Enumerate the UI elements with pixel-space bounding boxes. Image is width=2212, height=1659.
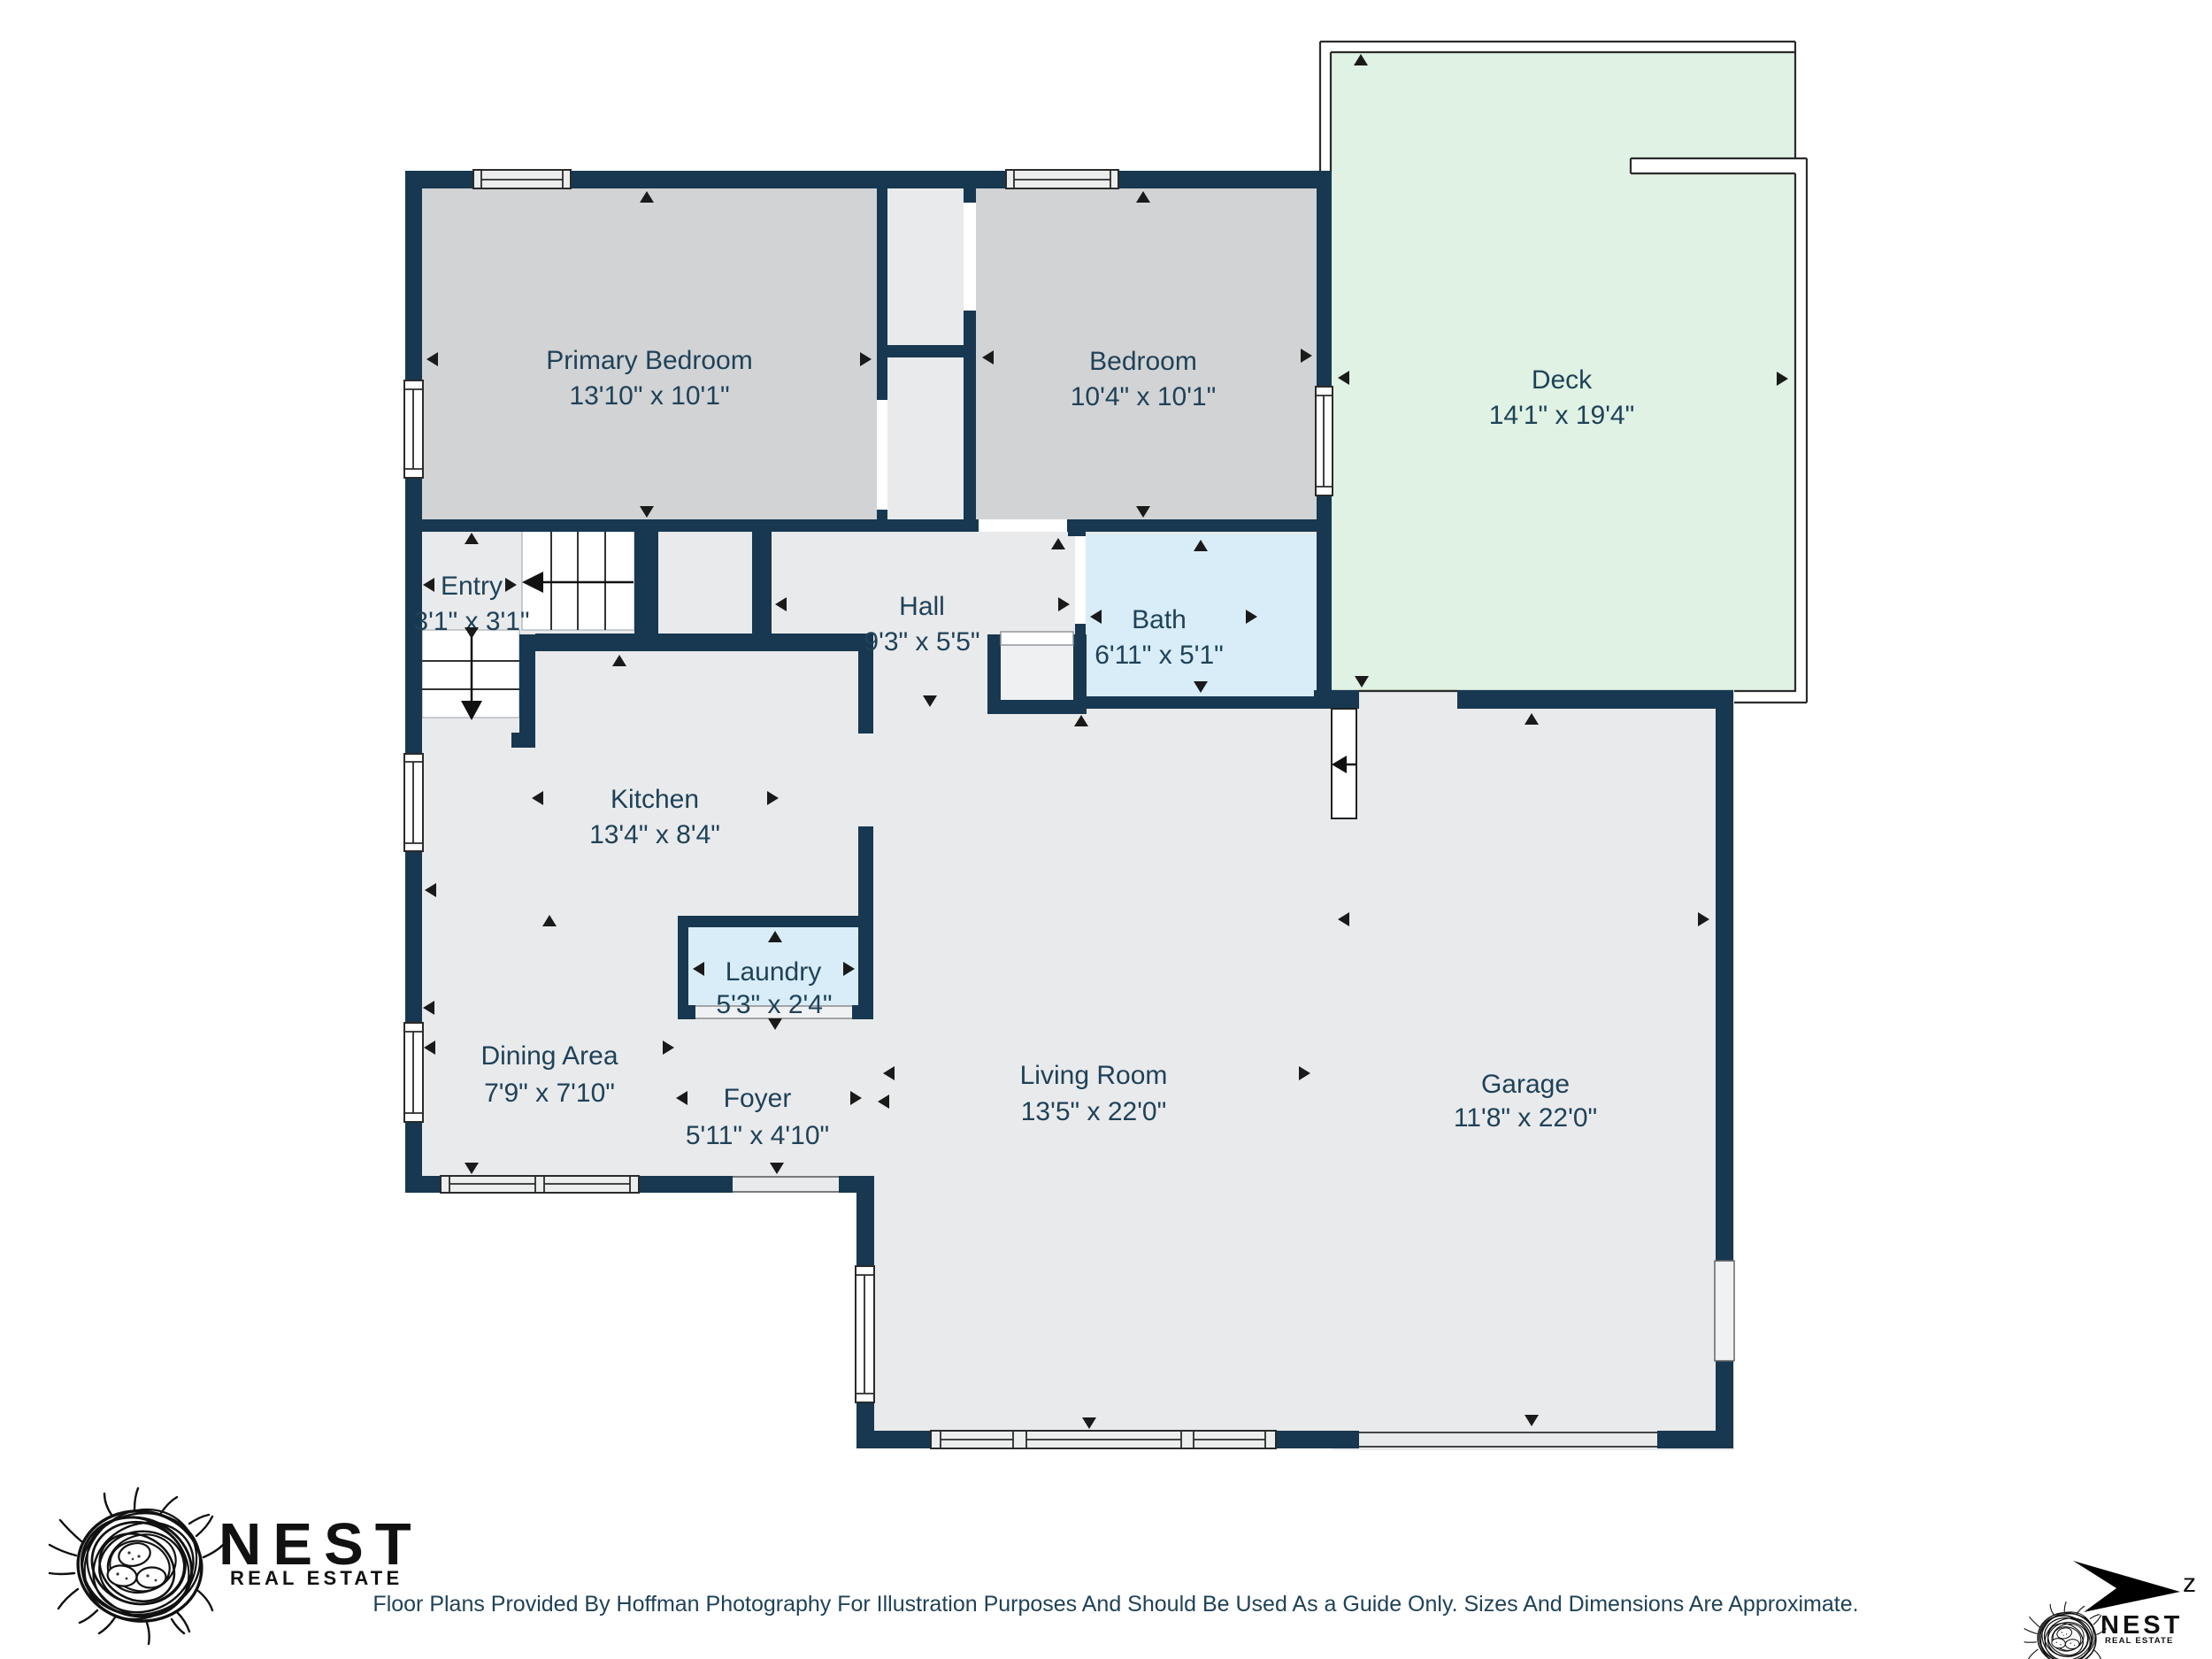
svg-text:14'1" x 19'4": 14'1" x 19'4" <box>1489 401 1635 430</box>
svg-text:Hall: Hall <box>899 592 945 621</box>
svg-text:REAL ESTATE: REAL ESTATE <box>230 1567 403 1589</box>
svg-text:9'3" x 5'5": 9'3" x 5'5" <box>864 627 979 657</box>
svg-text:Living Room: Living Room <box>1020 1061 1168 1090</box>
svg-text:13'10" x 10'1": 13'10" x 10'1" <box>569 381 729 411</box>
svg-text:6'11" x 5'1": 6'11" x 5'1" <box>1094 641 1224 670</box>
svg-text:10'4" x 10'1": 10'4" x 10'1" <box>1071 382 1217 411</box>
svg-text:Bath: Bath <box>1132 605 1187 634</box>
svg-text:Laundry: Laundry <box>726 957 821 987</box>
svg-text:7'9" x 7'10": 7'9" x 7'10" <box>484 1079 615 1108</box>
svg-text:REAL ESTATE: REAL ESTATE <box>2105 1636 2174 1646</box>
svg-text:13'5" x 22'0": 13'5" x 22'0" <box>1021 1097 1167 1126</box>
svg-text:Primary Bedroom: Primary Bedroom <box>546 346 752 375</box>
svg-text:Foyer: Foyer <box>724 1084 792 1113</box>
svg-text:Garage: Garage <box>1481 1070 1570 1099</box>
svg-text:Entry: Entry <box>441 572 503 601</box>
svg-text:Kitchen: Kitchen <box>611 785 699 814</box>
svg-text:5'3" x 2'4": 5'3" x 2'4" <box>716 990 832 1019</box>
svg-text:Dining Area: Dining Area <box>480 1041 618 1071</box>
svg-text:Deck: Deck <box>1532 365 1593 395</box>
svg-text:11'8" x 22'0": 11'8" x 22'0" <box>1454 1103 1597 1133</box>
svg-text:z: z <box>2183 1569 2196 1598</box>
svg-text:Bedroom: Bedroom <box>1089 347 1197 376</box>
svg-text:13'4" x 8'4": 13'4" x 8'4" <box>589 820 720 849</box>
svg-text:Floor Plans Provided By Hoffma: Floor Plans Provided By Hoffman Photogra… <box>373 1592 1858 1617</box>
svg-text:5'11" x 4'10": 5'11" x 4'10" <box>686 1121 829 1150</box>
